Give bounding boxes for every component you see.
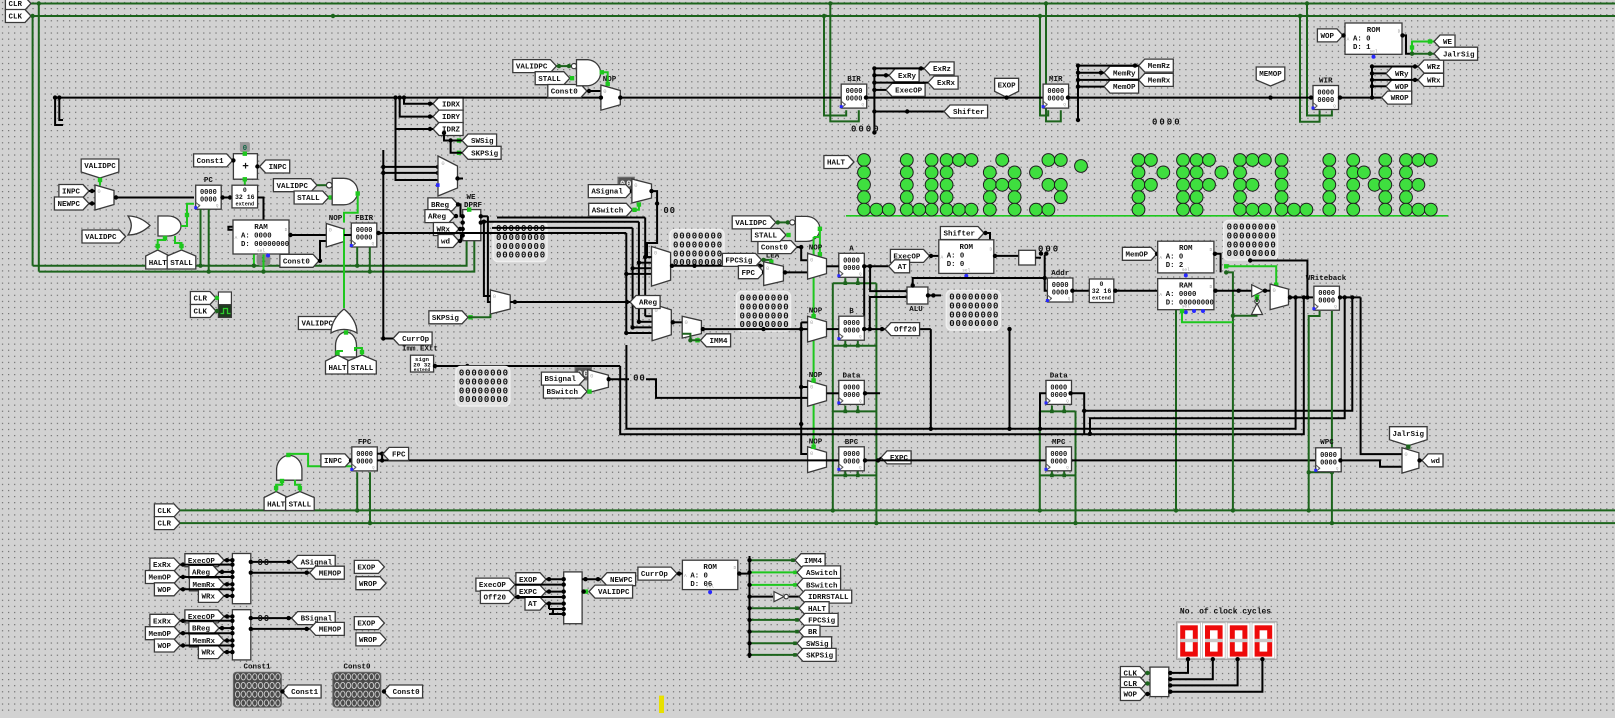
svg-text:extend: extend [414, 367, 431, 373]
svg-text:CLK: CLK [157, 508, 171, 516]
svg-text:ASwitch: ASwitch [806, 570, 838, 578]
svg-text:IMM4: IMM4 [709, 338, 728, 346]
svg-text:MemOP: MemOP [1125, 251, 1148, 259]
svg-text:sel: sel [706, 584, 714, 590]
svg-text:ExRx: ExRx [153, 618, 172, 626]
svg-text:STALL: STALL [754, 233, 777, 241]
svg-text:MemOP: MemOP [148, 631, 171, 639]
svg-text:0000: 0000 [1050, 458, 1067, 466]
svg-text:MemRx: MemRx [1148, 78, 1171, 86]
svg-text:Off20: Off20 [483, 595, 506, 603]
svg-text:VALIDPC: VALIDPC [516, 64, 548, 72]
svg-text:sel: sel [962, 267, 970, 273]
svg-text:SKPSig: SKPSig [806, 653, 834, 661]
svg-text:00000000: 00000000 [496, 251, 546, 261]
svg-text:JalrSig: JalrSig [1393, 431, 1425, 439]
svg-text:MPC: MPC [1052, 439, 1066, 447]
svg-text:0: 0 [441, 160, 444, 167]
svg-text:D: 1: D: 1 [1353, 44, 1371, 52]
svg-text:wd: wd [1431, 458, 1440, 466]
svg-text:sel: sel [1182, 267, 1190, 273]
svg-text:0: 0 [590, 373, 593, 380]
svg-text:WPC: WPC [1320, 439, 1334, 447]
svg-text:0000: 0000 [1318, 298, 1335, 306]
svg-text:SWSig: SWSig [471, 138, 494, 146]
svg-text:VALIDPC: VALIDPC [301, 321, 333, 329]
svg-text:0000: 0000 [1052, 290, 1069, 298]
svg-text:0000: 0000 [1317, 97, 1334, 105]
svg-text:00: 00 [258, 614, 271, 624]
svg-text:sel: sel [1369, 48, 1377, 54]
svg-text:NOP: NOP [329, 215, 343, 223]
svg-text:0: 0 [654, 250, 657, 257]
svg-text:Const1: Const1 [197, 158, 225, 166]
svg-text:0: 0 [634, 182, 637, 189]
svg-text:ROM: ROM [1179, 245, 1193, 253]
svg-text:0: 0 [810, 384, 813, 391]
svg-text:BIR: BIR [847, 76, 861, 84]
svg-text:STALL: STALL [351, 365, 374, 373]
svg-text:D: D [285, 227, 288, 233]
svg-text:No. of clock cycles: No. of clock cycles [1180, 608, 1271, 617]
svg-text:0: 0 [329, 227, 332, 234]
svg-text:D: D [989, 247, 992, 253]
svg-text:CurrOp: CurrOp [641, 571, 669, 579]
svg-text:0000: 0000 [356, 458, 373, 466]
svg-text:WRiteback: WRiteback [1306, 275, 1347, 283]
svg-text:WRx: WRx [201, 594, 215, 602]
svg-text:0000: 0000 [1047, 96, 1064, 104]
svg-text:WRy: WRy [1395, 71, 1409, 79]
svg-text:VALIDPC: VALIDPC [735, 220, 767, 228]
svg-text:SWSig: SWSig [806, 641, 829, 649]
svg-text:0: 0 [685, 319, 688, 326]
svg-text:SKPSig: SKPSig [432, 315, 460, 323]
svg-text:IDRX: IDRX [442, 101, 461, 109]
svg-text:VALIDPC: VALIDPC [85, 234, 117, 242]
svg-text:ROM: ROM [1367, 27, 1381, 35]
svg-text:DPRF: DPRF [464, 202, 483, 210]
svg-text:HALT: HALT [267, 502, 286, 510]
svg-text:CLK: CLK [8, 14, 22, 22]
svg-text:0000: 0000 [843, 458, 860, 466]
svg-text:CurrOp: CurrOp [402, 336, 430, 344]
svg-text:HALT: HALT [328, 365, 347, 373]
svg-text:WROP: WROP [359, 581, 378, 589]
svg-text:FPC: FPC [741, 270, 755, 278]
svg-text:BSwitch: BSwitch [546, 389, 578, 397]
svg-text:PC: PC [204, 177, 214, 185]
svg-text:ASignal: ASignal [591, 189, 623, 197]
svg-text:D: D [1210, 247, 1213, 253]
svg-text:Const0: Const0 [551, 89, 579, 97]
svg-text:VALIDPC: VALIDPC [598, 589, 630, 597]
svg-text:00000000: 00000000 [459, 395, 509, 405]
svg-text:WRx: WRx [201, 650, 215, 658]
svg-text:RAM: RAM [254, 224, 268, 232]
svg-text:INPC: INPC [324, 458, 343, 466]
svg-text:0: 0 [603, 88, 606, 95]
svg-text:A: 0000: A: 0000 [1166, 291, 1197, 299]
svg-text:0: 0 [243, 187, 247, 194]
svg-text:00000000: 00000000 [1227, 249, 1277, 259]
svg-text:INPC: INPC [269, 164, 288, 172]
svg-text:Imm EXtt: Imm EXtt [402, 346, 438, 354]
svg-text:FPCSig: FPCSig [808, 618, 836, 626]
svg-text:FPC: FPC [392, 452, 406, 460]
svg-text:0: 0 [766, 265, 769, 272]
svg-text:CLR: CLR [8, 1, 22, 9]
svg-text:MemOP: MemOP [1113, 84, 1136, 92]
svg-text:Shifter: Shifter [953, 109, 985, 117]
svg-text:ExecOP: ExecOP [479, 582, 507, 590]
svg-text:NOP: NOP [809, 245, 823, 253]
svg-text:A: 0: A: 0 [947, 252, 965, 260]
svg-text:A: 0000: A: 0000 [241, 233, 272, 241]
svg-text:WE: WE [466, 194, 476, 202]
svg-text:EXOP: EXOP [998, 82, 1017, 90]
svg-text:BPC: BPC [845, 439, 859, 447]
svg-text:A: A [1347, 37, 1350, 43]
svg-text:extend: extend [1092, 296, 1111, 302]
svg-text:ROM: ROM [703, 564, 717, 572]
svg-text:0000: 0000 [851, 125, 881, 135]
svg-text:MEMOP: MEMOP [1259, 71, 1282, 79]
svg-text:A: A [849, 245, 854, 253]
svg-text:ALU: ALU [909, 306, 923, 314]
svg-text:NEWPC: NEWPC [57, 201, 80, 209]
svg-text:MEMOP: MEMOP [319, 570, 342, 578]
svg-text:0000: 0000 [846, 96, 863, 104]
svg-text:00000000: 00000000 [949, 319, 999, 329]
svg-text:A: A [235, 235, 238, 241]
svg-text:0000: 0000 [1050, 392, 1067, 400]
svg-text:VALIDPC: VALIDPC [84, 163, 116, 171]
svg-text:Const0: Const0 [343, 664, 371, 672]
svg-text:STALL: STALL [170, 260, 193, 268]
svg-text:ExRx: ExRx [153, 562, 172, 570]
svg-text:EXOP: EXOP [357, 565, 376, 573]
svg-text:A: A [684, 573, 687, 579]
svg-text:BSignal: BSignal [544, 376, 576, 384]
svg-text:HALT: HALT [827, 160, 846, 168]
svg-text:HALT: HALT [149, 260, 168, 268]
svg-text:D: D [733, 565, 736, 571]
svg-text:+: + [242, 162, 249, 174]
svg-text:CLR: CLR [193, 296, 207, 304]
svg-text:Const0: Const0 [393, 689, 421, 697]
svg-text:STALL: STALL [297, 195, 320, 203]
svg-text:IDRY: IDRY [442, 114, 461, 122]
svg-text:WOP: WOP [157, 643, 171, 651]
svg-text:ExecOP: ExecOP [895, 88, 923, 96]
svg-text:Const1: Const1 [291, 689, 319, 697]
svg-text:FPCSig: FPCSig [725, 258, 753, 266]
svg-text:CLK: CLK [193, 309, 207, 317]
svg-text:A: A [1159, 292, 1162, 298]
svg-text:IDRRSTALL: IDRRSTALL [808, 594, 849, 602]
svg-text:ExRx: ExRx [937, 80, 956, 88]
svg-text:0000: 0000 [1152, 118, 1182, 128]
svg-text:0: 0 [1272, 287, 1275, 294]
svg-text:WOP: WOP [1123, 692, 1137, 700]
svg-text:AReg: AReg [428, 214, 447, 222]
svg-text:0000: 0000 [843, 265, 860, 273]
svg-text:Addr: Addr [1051, 270, 1069, 278]
svg-text:32 16: 32 16 [235, 194, 255, 201]
svg-text:00: 00 [663, 206, 676, 216]
svg-text:0000: 0000 [843, 328, 860, 336]
svg-text:A: A [940, 255, 943, 261]
svg-text:IMM4: IMM4 [804, 558, 823, 566]
svg-text:WROP: WROP [359, 637, 378, 645]
svg-text:0: 0 [810, 450, 813, 457]
svg-text:0: 0 [810, 256, 813, 263]
svg-text:00: 00 [258, 558, 271, 568]
svg-text:Shifter: Shifter [943, 231, 975, 239]
svg-text:A: A [1159, 255, 1162, 261]
svg-text:HALT: HALT [808, 606, 827, 614]
svg-text:ExRy: ExRy [898, 73, 917, 81]
svg-text:WRz: WRz [1427, 64, 1441, 72]
svg-text:SKPSig: SKPSig [471, 150, 499, 158]
svg-text:WIR: WIR [1319, 78, 1333, 86]
svg-text:STALL: STALL [538, 76, 561, 84]
svg-text:BReg: BReg [431, 202, 450, 210]
svg-text:0: 0 [97, 188, 100, 195]
svg-text:CLR: CLR [157, 521, 171, 529]
svg-text:MemOP: MemOP [148, 575, 171, 583]
svg-text:0000: 0000 [1320, 459, 1337, 467]
svg-text:Const1: Const1 [243, 664, 271, 672]
svg-text:Const0: Const0 [283, 258, 311, 266]
svg-text:WE: WE [1443, 39, 1453, 47]
svg-text:0000: 0000 [356, 235, 373, 243]
svg-text:WOP: WOP [1320, 33, 1334, 41]
svg-text:ROM: ROM [960, 244, 974, 252]
svg-text:wd: wd [441, 239, 450, 247]
svg-text:00: 00 [633, 374, 646, 384]
svg-text:B: B [849, 308, 854, 316]
svg-text:0000: 0000 [843, 392, 860, 400]
svg-text:A: 0: A: 0 [1166, 254, 1184, 262]
svg-text:WROP: WROP [1391, 95, 1410, 103]
svg-text:AReg: AReg [639, 300, 658, 308]
svg-text:A: 0: A: 0 [690, 573, 708, 581]
svg-text:AT: AT [898, 264, 908, 272]
svg-text:BSwitch: BSwitch [806, 583, 838, 591]
svg-text:ASwitch: ASwitch [592, 207, 624, 215]
svg-text:Data: Data [842, 372, 861, 380]
svg-text:ExRz: ExRz [933, 66, 951, 74]
svg-text:0: 0 [810, 319, 813, 326]
svg-text:MemRz: MemRz [1148, 63, 1171, 71]
svg-text:WRx: WRx [1427, 78, 1441, 86]
svg-text:A: 0: A: 0 [1353, 36, 1371, 44]
svg-text:BR: BR [808, 629, 818, 637]
svg-text:D: 2: D: 2 [1166, 262, 1184, 270]
svg-text:JalrSig: JalrSig [1443, 51, 1475, 59]
svg-text:0: 0 [493, 293, 496, 300]
svg-text:Off20: Off20 [894, 327, 917, 335]
svg-text:WOP: WOP [157, 587, 171, 595]
svg-text:D: 00000000: D: 00000000 [241, 241, 289, 249]
svg-text:0000: 0000 [200, 197, 217, 205]
svg-text:NEWPC: NEWPC [610, 577, 633, 585]
svg-text:EXOP: EXOP [357, 621, 376, 629]
svg-text:D: D [1398, 29, 1401, 35]
svg-text:Const0: Const0 [761, 245, 789, 253]
svg-text:MemRy: MemRy [1113, 70, 1136, 78]
svg-text:STALL: STALL [289, 502, 312, 510]
svg-text:INPC: INPC [62, 189, 81, 197]
svg-text:AT: AT [528, 601, 538, 609]
svg-text:EXPC: EXPC [890, 455, 909, 463]
svg-text:MEMOP: MEMOP [319, 627, 342, 635]
svg-text:MIR: MIR [1049, 76, 1063, 84]
svg-text:Data: Data [1050, 372, 1069, 380]
svg-text:0: 0 [1100, 281, 1104, 288]
svg-text:VALIDPC: VALIDPC [276, 183, 308, 191]
svg-text:FBIR: FBIR [355, 215, 374, 223]
svg-text:D: D [1210, 284, 1213, 290]
svg-text:32 16: 32 16 [1092, 288, 1112, 295]
svg-text:FPC: FPC [358, 439, 372, 447]
svg-text:extend: extend [235, 202, 254, 208]
svg-text:0: 0 [1404, 451, 1407, 458]
svg-text:RAM: RAM [1179, 283, 1193, 291]
